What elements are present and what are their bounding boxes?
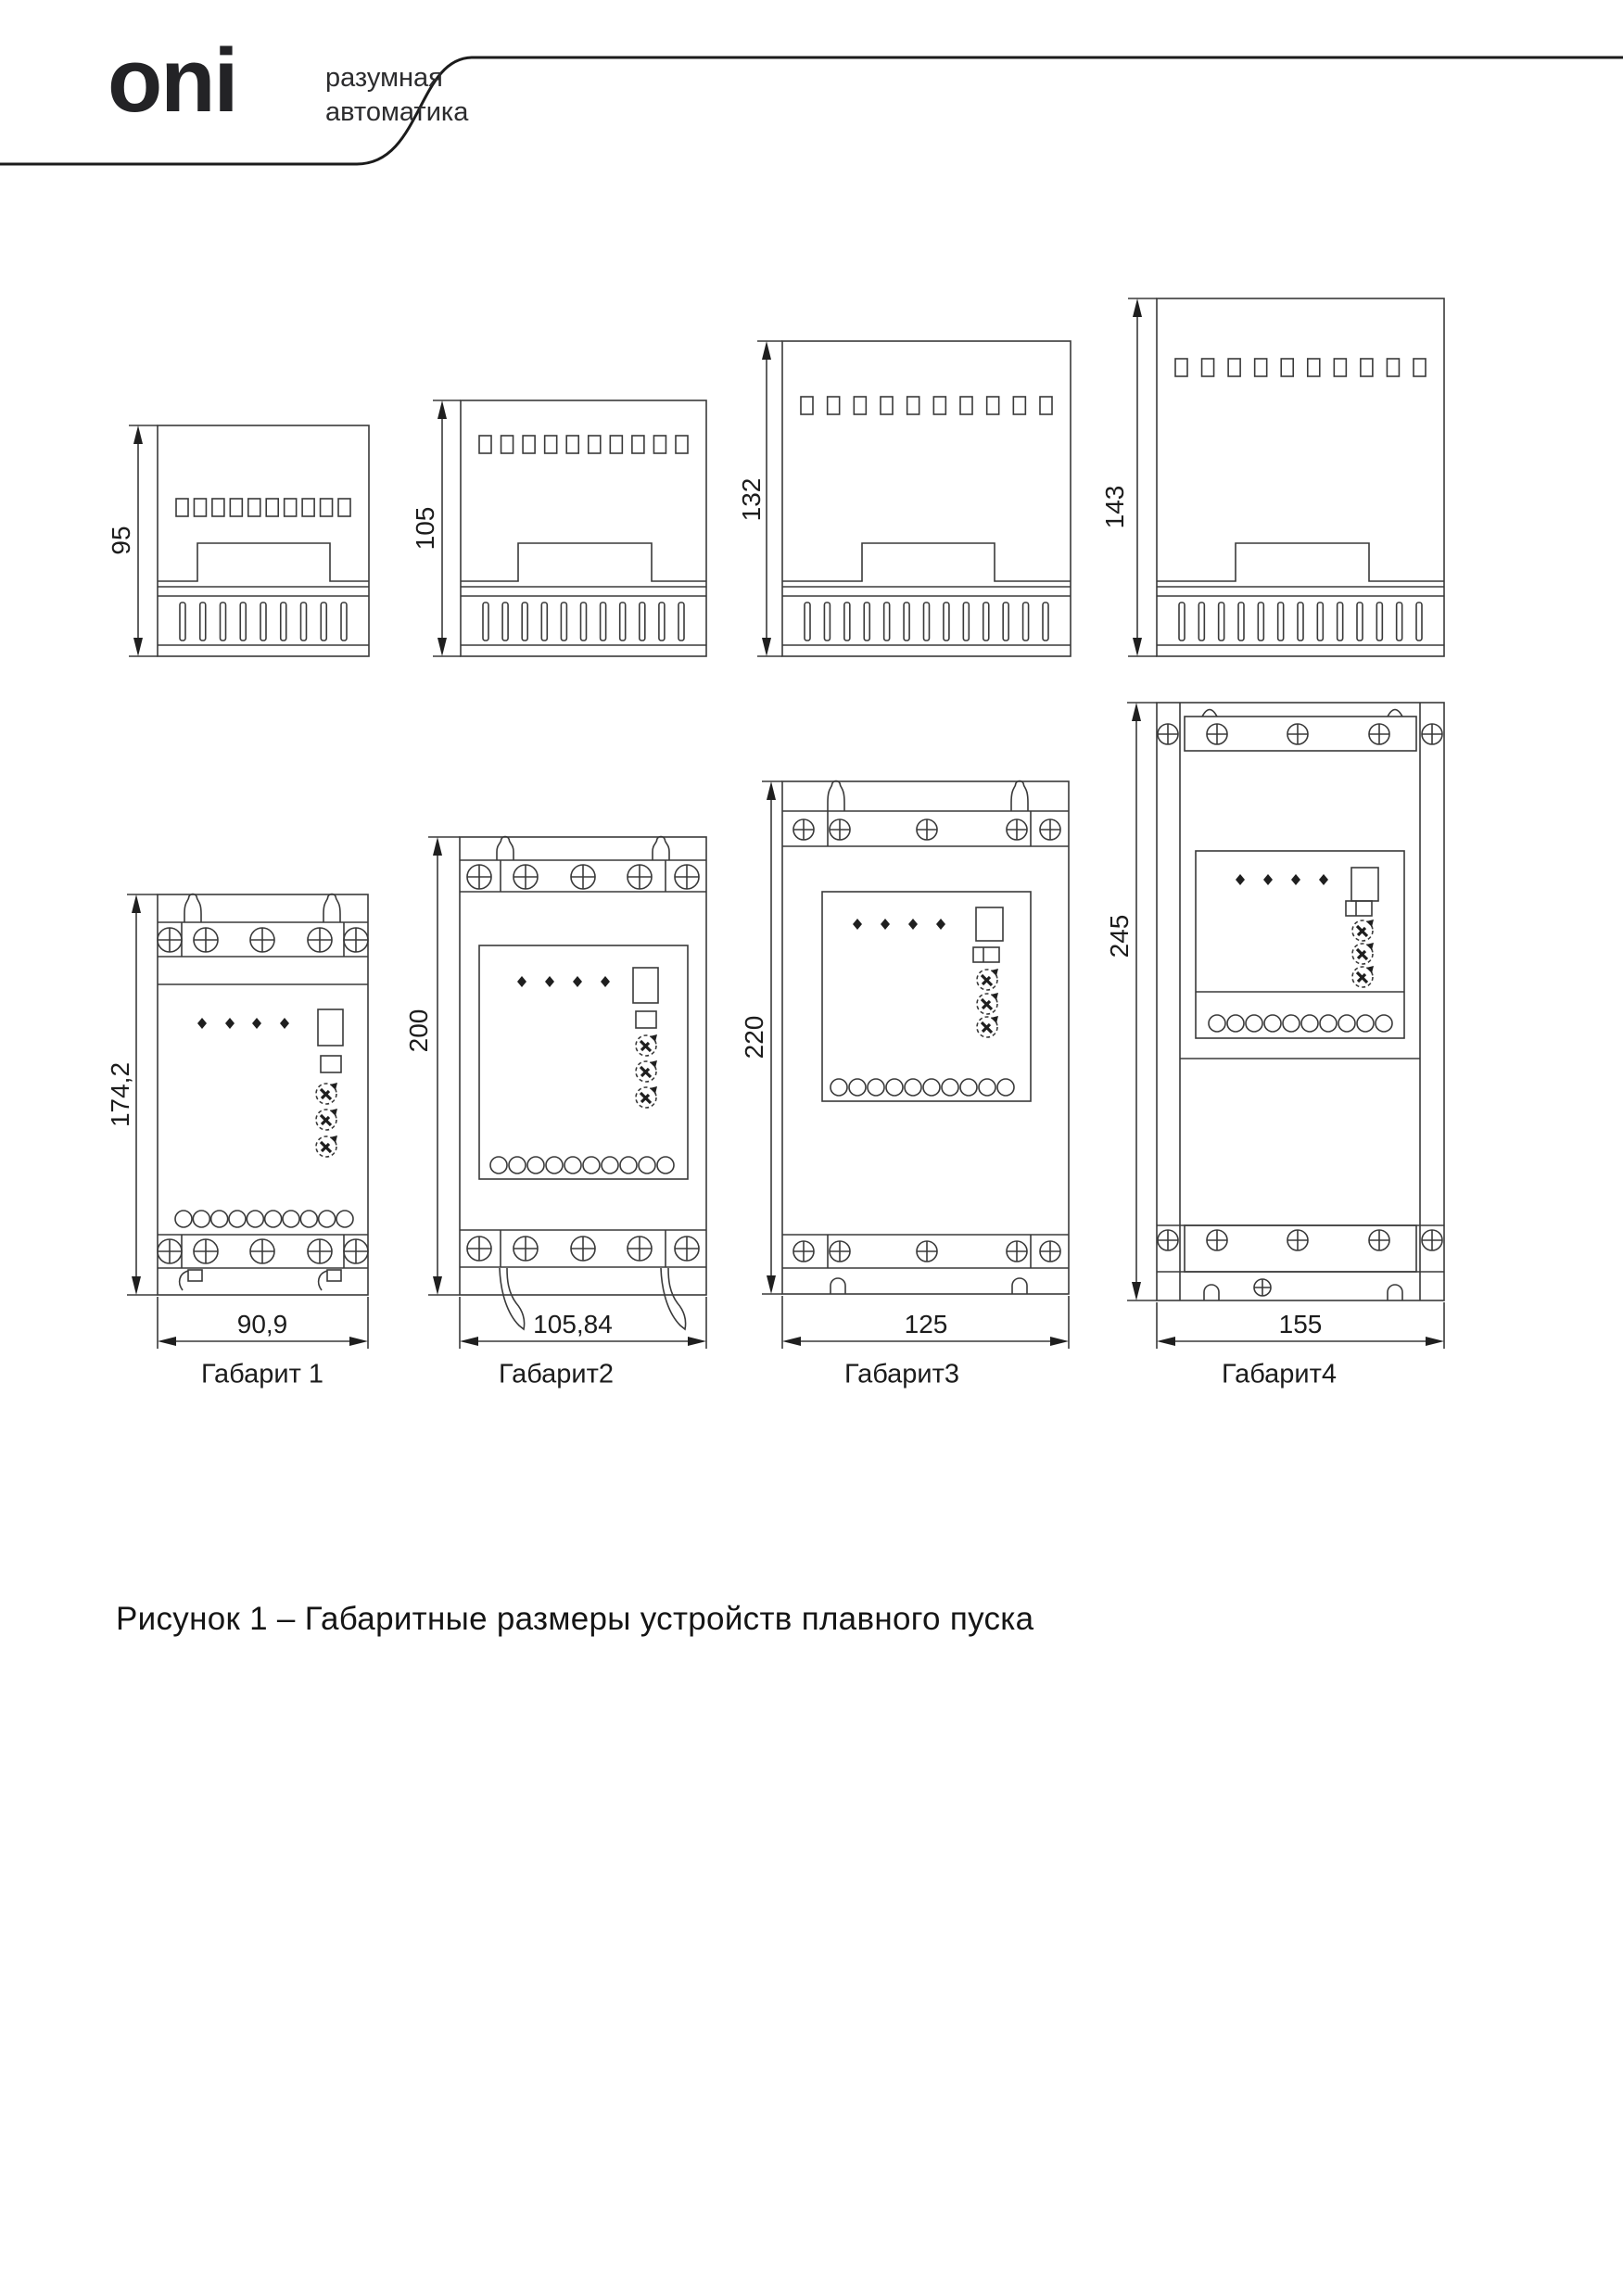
dim-front-height-4: 245 [1105, 915, 1135, 958]
oni-logo: oni [108, 35, 236, 125]
tagline-line2: автоматика [325, 95, 468, 130]
logo-tagline: разумная автоматика [325, 61, 468, 130]
dim-front-height-2: 200 [404, 1009, 434, 1053]
header-divider-curve [0, 57, 1623, 164]
gabarit3-front-view [762, 781, 1069, 1350]
figure-caption: Рисунок 1 – Габаритные размеры устройств… [116, 1601, 1033, 1638]
frame-caption-3: Габарит3 [844, 1360, 959, 1390]
dim-width-2: 105,84 [533, 1310, 613, 1339]
dim-side-height-3: 132 [737, 478, 767, 522]
frame-caption-2: Габарит2 [499, 1360, 614, 1390]
frame-caption-1: Габарит 1 [201, 1360, 323, 1390]
gabarit2-side-view [433, 400, 706, 656]
gabarit1-front-view [127, 894, 368, 1350]
drawings-canvas [0, 0, 1623, 2296]
gabarit1-side-view [129, 425, 369, 656]
dim-front-height-3: 220 [740, 1016, 769, 1059]
gabarit4-front-view [1127, 703, 1444, 1349]
dim-width-4: 155 [1279, 1310, 1323, 1339]
gabarit2-front-view [428, 837, 706, 1350]
gabarit4-side-view [1128, 298, 1444, 656]
gabarit3-side-view [757, 341, 1071, 656]
frame-caption-4: Габарит4 [1222, 1360, 1337, 1390]
dim-front-height-1: 174,2 [106, 1062, 135, 1127]
dim-width-1: 90,9 [237, 1310, 288, 1339]
page-root: oni разумная автоматика 95 105 132 143 1… [0, 0, 1623, 2296]
tagline-line1: разумная [325, 61, 468, 95]
dim-width-3: 125 [905, 1310, 948, 1339]
dim-side-height-1: 95 [107, 526, 136, 554]
dim-side-height-2: 105 [411, 507, 440, 551]
dim-side-height-4: 143 [1100, 486, 1130, 529]
